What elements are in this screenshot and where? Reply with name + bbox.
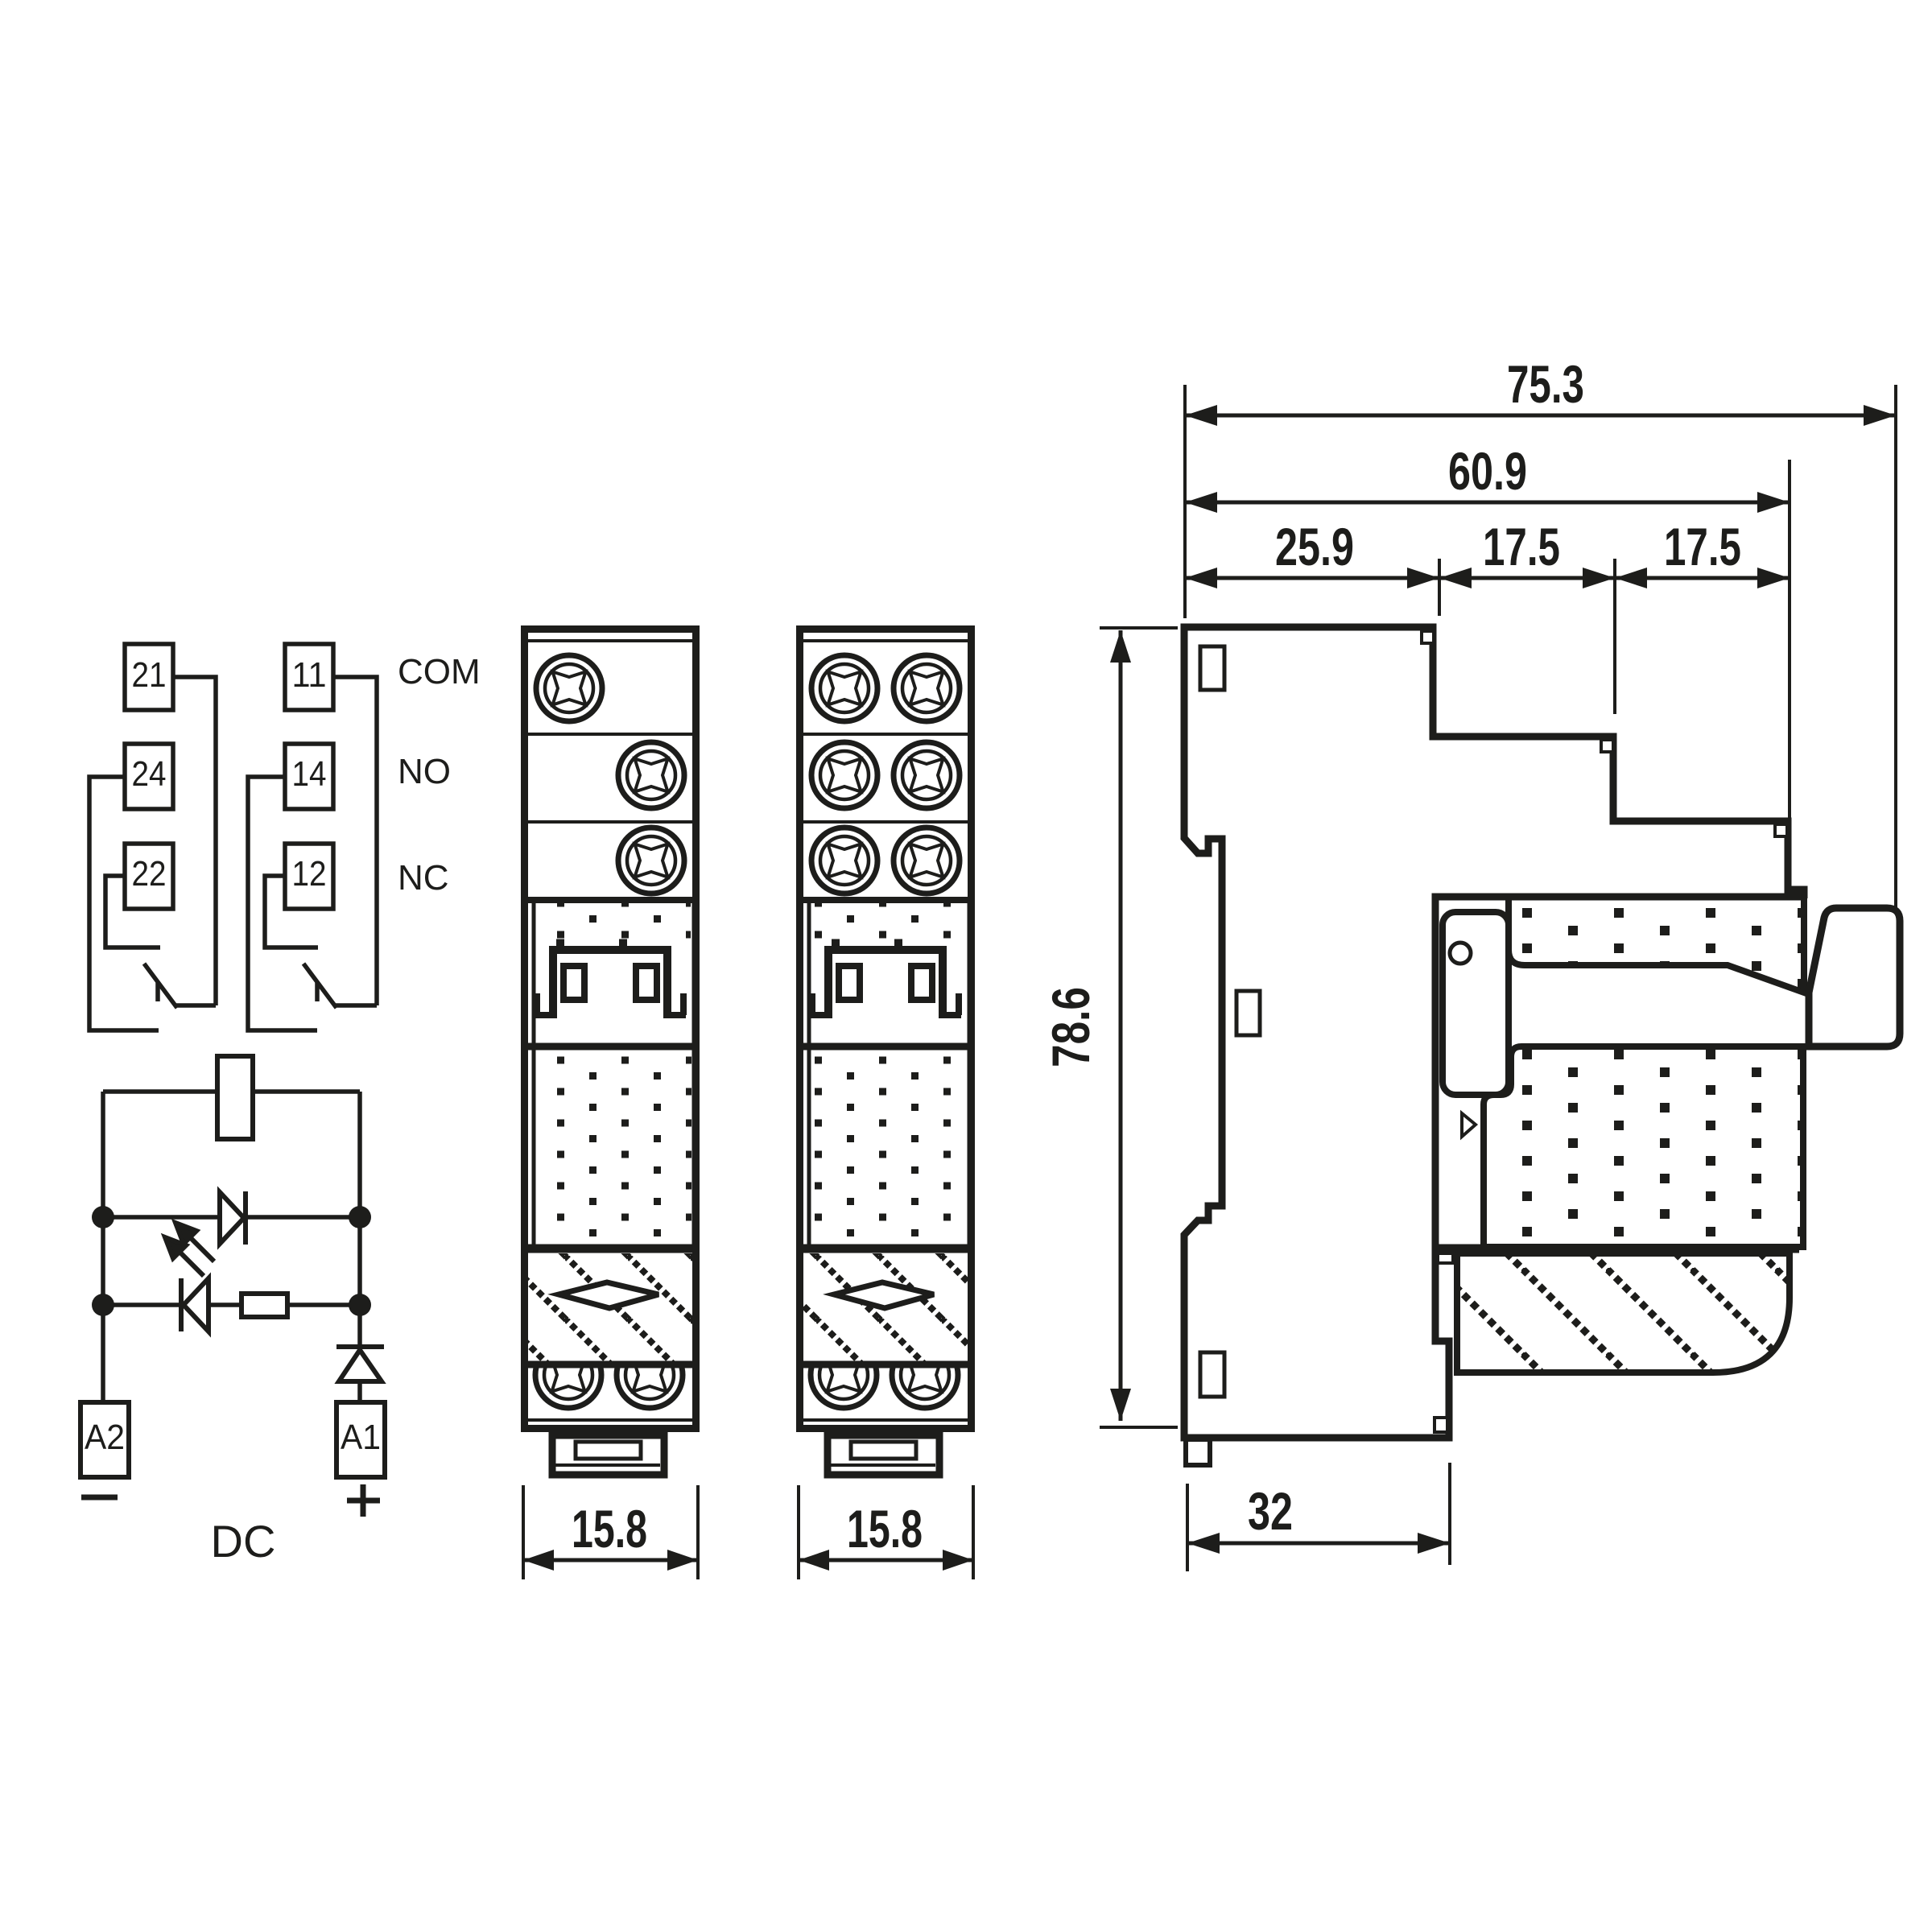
svg-text:22: 22 bbox=[132, 854, 167, 894]
svg-text:NO: NO bbox=[398, 752, 451, 791]
svg-text:11: 11 bbox=[292, 655, 327, 695]
svg-text:14: 14 bbox=[292, 754, 327, 794]
svg-text:15.8: 15.8 bbox=[847, 1499, 923, 1558]
svg-text:75.3: 75.3 bbox=[1507, 354, 1584, 414]
svg-text:78.6: 78.6 bbox=[1041, 987, 1100, 1067]
svg-text:21: 21 bbox=[132, 655, 167, 695]
svg-text:32: 32 bbox=[1248, 1481, 1293, 1541]
svg-text:12: 12 bbox=[292, 854, 327, 894]
svg-text:A1: A1 bbox=[341, 1418, 381, 1457]
svg-text:COM: COM bbox=[398, 652, 481, 691]
svg-text:DC: DC bbox=[211, 1516, 276, 1567]
svg-text:17.5: 17.5 bbox=[1483, 517, 1560, 576]
svg-text:15.8: 15.8 bbox=[572, 1499, 647, 1558]
svg-text:17.5: 17.5 bbox=[1664, 517, 1741, 576]
svg-text:A2: A2 bbox=[85, 1418, 125, 1457]
svg-text:25.9: 25.9 bbox=[1275, 517, 1354, 576]
svg-text:NC: NC bbox=[398, 858, 449, 898]
svg-text:24: 24 bbox=[132, 754, 167, 794]
svg-text:60.9: 60.9 bbox=[1448, 441, 1527, 501]
